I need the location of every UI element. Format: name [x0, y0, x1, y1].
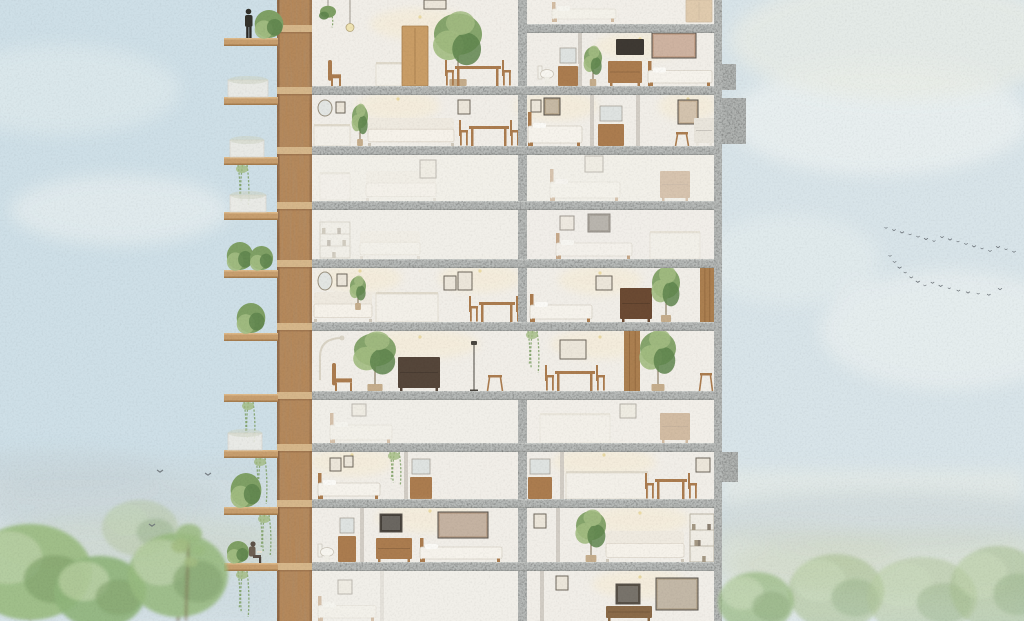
- scene-svg: [0, 0, 1024, 621]
- architectural-section-rendering: [0, 0, 1024, 621]
- watercolor-grain-overlay: [0, 0, 1024, 621]
